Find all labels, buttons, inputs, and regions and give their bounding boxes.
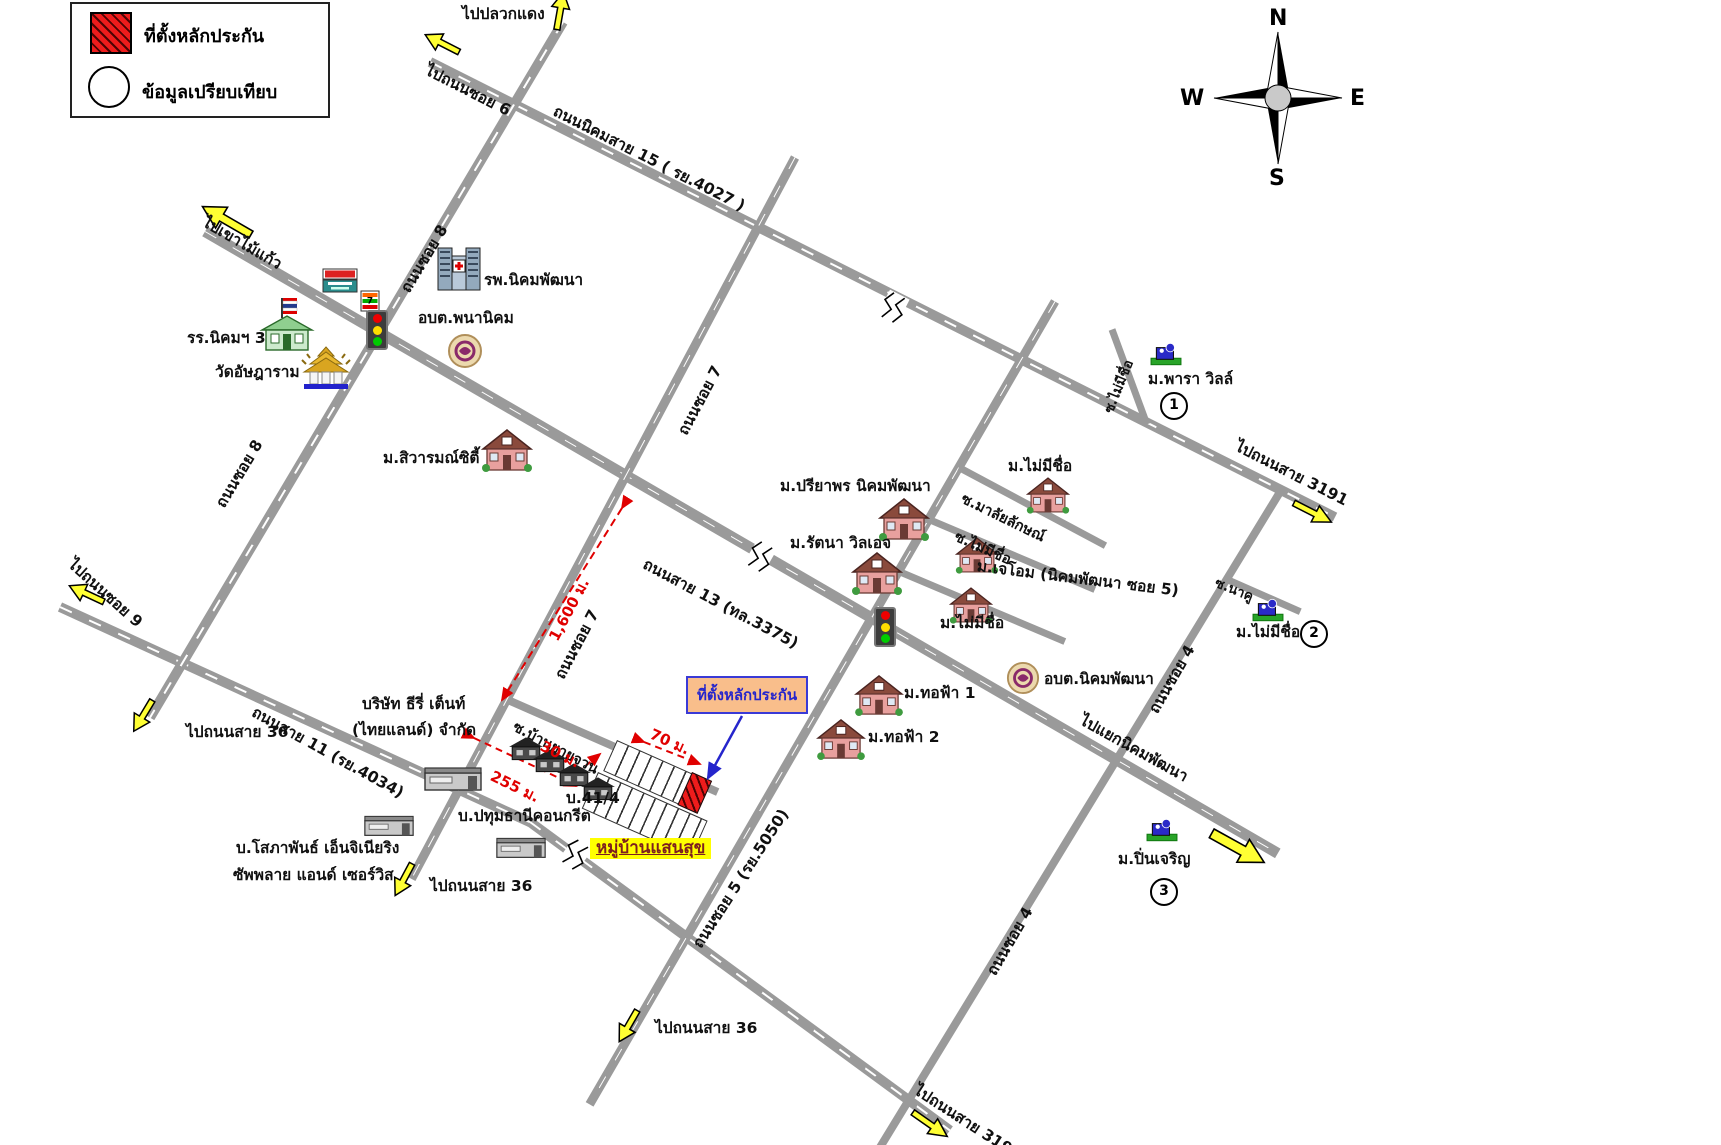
legend-comparison-label: ข้อมูลเปรียบเทียบ xyxy=(142,77,277,106)
dest-label-sai-36-west: ไปถนนสาย 36 xyxy=(186,724,288,741)
house-thorfa1-icon xyxy=(854,674,904,716)
obt-nikhomphatthana-logo-icon xyxy=(1006,661,1040,695)
place-label-noname-north: ม.ไม่มีชื่อ xyxy=(1008,458,1072,475)
place-label-sivarom-city: ม.สิวารมณ์ซิตี้ xyxy=(383,450,479,467)
traffic-light-west xyxy=(366,310,388,350)
place-label-noname-east: ม.ไม่มีชื่อ xyxy=(1236,624,1300,641)
arrow-pluak-daeng xyxy=(548,0,572,31)
factory-sopaphan-icon xyxy=(364,812,414,838)
collateral-callout: ที่ตั้งหลักประกัน xyxy=(686,676,808,714)
place-label-temple: วัดอัษฎาราม xyxy=(215,364,300,381)
place-label-sopaphan-line1: บ.โสภาพันธ์ เอ็นจิเนียริง xyxy=(236,840,399,857)
arrow-soi-6 xyxy=(421,27,463,60)
comparison-marker-2: 2 xyxy=(1300,620,1328,648)
place-label-pathum-concrete: บ.ปทุมธานีคอนกรีต xyxy=(458,808,591,825)
place-label-sopaphan-line2: ซัพพลาย แอนด์ เซอร์วิส xyxy=(233,867,394,884)
place-label-para-ville: ม.พารา วิลล์ xyxy=(1148,371,1233,388)
factory-theeree-icon xyxy=(424,764,482,792)
house-noname-north-icon xyxy=(1026,476,1070,514)
place-label-obt-nikhom: อบต.นิคมพัฒนา xyxy=(1044,671,1154,688)
map-canvas: ที่ตั้งหลักประกัน ข้อมูลเปรียบเทียบ N W … xyxy=(0,0,1721,1145)
road-break-3 xyxy=(557,836,592,873)
comparison-marker-3: 3 xyxy=(1150,878,1178,906)
arrow-yaek-nikhom xyxy=(1205,822,1270,874)
comparison-marker-1: 1 xyxy=(1160,392,1188,420)
comparison-house-1-icon xyxy=(1150,342,1182,366)
dest-label-sai-36-mid: ไปถนนสาย 36 xyxy=(430,878,532,895)
place-label-thorfa-1: ม.ทอฟ้า 1 xyxy=(904,685,976,702)
place-label-noname-south: ม.ไม่มีชื่อ xyxy=(940,615,1004,632)
dest-label-sai-36-south: ไปถนนสาย 36 xyxy=(655,1020,757,1037)
road-break-2 xyxy=(743,539,777,576)
legend-comparison-circle xyxy=(88,66,130,108)
svg-text:7: 7 xyxy=(367,297,373,307)
place-label-baan-41-4: บ.41/4 xyxy=(566,790,620,807)
place-label-hospital: รพ.นิคมพัฒนา xyxy=(484,272,583,289)
place-label-priyaporn: ม.ปรียาพร นิคมพัฒนา xyxy=(780,478,931,495)
road-break-1 xyxy=(876,290,909,327)
temple-icon xyxy=(300,346,352,390)
hospital-icon xyxy=(436,244,482,292)
house-rattana-icon xyxy=(851,551,903,595)
legend-box: ที่ตั้งหลักประกัน ข้อมูลเปรียบเทียบ xyxy=(70,2,330,118)
factory-pathum-icon xyxy=(496,834,546,860)
compass-e-label: E xyxy=(1350,86,1365,111)
place-label-school: รร.นิคมฯ 3 xyxy=(187,330,266,347)
place-label-theeree-line1: บริษัท ธีรี่ เต็นท์ xyxy=(362,696,465,713)
arrow-sai-36-south xyxy=(611,1006,645,1046)
compass-n-label: N xyxy=(1269,6,1287,31)
comparison-house-3-icon xyxy=(1146,818,1178,842)
traffic-light-east xyxy=(874,607,896,647)
comparison-house-2-icon xyxy=(1252,598,1284,622)
place-label-thorfa-2: ม.ทอฟ้า 2 xyxy=(868,729,940,746)
arrow-sai-36-west xyxy=(126,696,160,736)
collateral-pointer xyxy=(708,716,742,778)
dest-label-pluak-daeng: ไปปลวกแดง xyxy=(462,6,545,23)
obt-phananikhom-logo-icon xyxy=(447,333,483,369)
compass-s-label: S xyxy=(1269,166,1285,191)
place-label-pin-charoen: ม.ปิ่นเจริญ xyxy=(1118,851,1190,868)
house-sivarom-icon xyxy=(481,428,533,472)
compass-rose-icon xyxy=(1212,30,1344,166)
seven-eleven-icon: 7 xyxy=(360,290,380,312)
house-thorfa2-icon xyxy=(816,718,866,760)
place-label-theeree-line2: (ไทยแลนด์) จำกัด xyxy=(352,722,476,739)
legend-collateral-label: ที่ตั้งหลักประกัน xyxy=(144,21,264,50)
store-sign-icon xyxy=(322,268,358,298)
legend-collateral-swatch xyxy=(90,12,132,54)
place-label-obt-phananikhom: อบต.พนานิคม xyxy=(418,310,514,327)
compass-w-label: W xyxy=(1180,86,1204,111)
place-label-saensuk-village: หมู่บ้านแสนสุข xyxy=(590,838,711,859)
place-label-rattana-village: ม.รัตนา วิลเอจ xyxy=(790,535,891,552)
